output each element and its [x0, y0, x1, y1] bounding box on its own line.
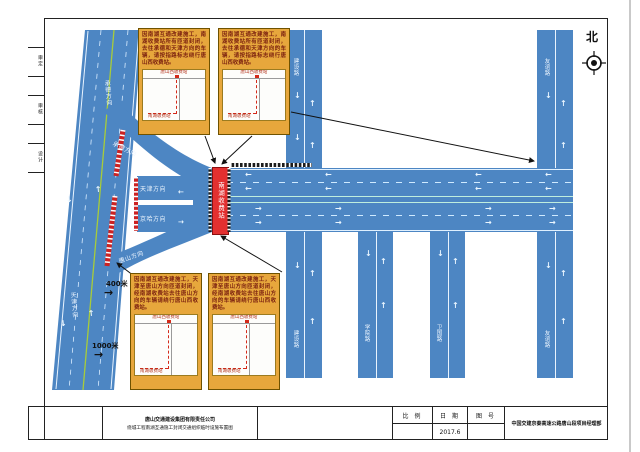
- detour-mini-map: 唐山西收费站 南湖收费站: [142, 69, 206, 121]
- arrow-up-icon: ↑: [95, 186, 102, 195]
- map-detour-route: [176, 80, 177, 114]
- arrow-right-icon: →: [549, 219, 556, 227]
- arrow-up-icon: ↑: [88, 310, 95, 319]
- lane-dash-line: [227, 215, 573, 216]
- street-3-name: 卫国路: [435, 324, 441, 342]
- arrow-up-icon: ↑: [560, 270, 567, 278]
- toll-station-name: 南湖收费站: [216, 182, 226, 220]
- margin-label-sheji: 设计: [28, 146, 44, 168]
- detour-mini-map: 唐山西收费站 南湖收费站: [222, 69, 286, 121]
- north-label: 北: [586, 28, 598, 45]
- date-cell: 日 期 2017.6: [433, 407, 468, 440]
- company-name: 唐山交通建设集团有限责任公司: [145, 416, 215, 423]
- notice-text: 因南湖互通改建施工，天津至唐山方向匝道封闭，经南湖收费站去往唐山方向的车辆请绕行…: [134, 277, 198, 312]
- margin-cell: 审定: [28, 47, 44, 77]
- arrow-left-icon: ←: [245, 171, 252, 179]
- map-detour-route: [168, 325, 169, 369]
- arrow-down-icon: ↓: [294, 262, 301, 270]
- ramp-c-direction: 京哈方向: [140, 214, 166, 223]
- arrow-up-icon: ↑: [309, 318, 316, 326]
- street-2-name: 学院路: [363, 324, 369, 342]
- arrow-up-icon: ↑: [560, 318, 567, 326]
- arrow-up-icon: ↑: [380, 258, 387, 266]
- ramp-b-direction: 天津方向: [140, 184, 166, 193]
- map-near-station-label: 南湖收费站: [218, 370, 241, 375]
- notice-top-left: 因南湖互通改建施工，南湖收费站所有匝道封闭，去往承德和天津方向的车辆，请按指路标…: [138, 28, 210, 135]
- map-street-line: [179, 78, 180, 120]
- mainline-lower-direction: 天津方向: [69, 292, 77, 318]
- title-block: 唐山交通建设集团有限责任公司 绕城工程南湖互通施工封闭交通组织临时设施布置图 比…: [28, 406, 608, 440]
- arrow-right-icon: →: [255, 219, 262, 227]
- arrow-up-icon: ↑: [309, 270, 316, 278]
- arrow-right-icon: →: [335, 219, 342, 227]
- org-cell: 中国交建京秦高速公路唐山段项目经理部: [505, 407, 608, 440]
- map-far-station-label: 唐山西收费站: [230, 316, 257, 321]
- street-1-name-top: 建设路: [292, 58, 298, 76]
- org-name: 中国交建京秦高速公路唐山段项目经理部: [511, 420, 601, 427]
- compass-icon: [579, 48, 609, 78]
- titleblock-company-cell: 唐山交通建设集团有限责任公司 绕城工程南湖互通施工封闭交通组织临时设施布置图: [103, 407, 258, 440]
- titleblock-empty-cell: [28, 407, 45, 440]
- drawing-page: 建设路 ↓ ↓ ↑ ↑ ↓ ↑ ↑ 建设路 ↓ ↑ ↑ 学院路 ↓ ↑ ↑ 卫国…: [0, 0, 640, 452]
- street-1-name-bottom: 建设路: [292, 330, 298, 348]
- arrow-up-icon: ↑: [309, 142, 316, 150]
- arrow-up-icon: ↑: [309, 100, 316, 108]
- arrow-right-icon: →: [178, 218, 184, 226]
- map-street-line: [135, 323, 197, 324]
- scale-label: 比 例: [393, 407, 432, 424]
- notice-text: 因南湖互通改建施工，天津至唐山方向匝道封闭，经南湖收费站去往唐山方向的车辆请绕行…: [212, 277, 276, 312]
- arrow-right-icon: →: [335, 205, 342, 213]
- notice-bottom-left: 因南湖互通改建施工，天津至唐山方向匝道封闭，经南湖收费站去往唐山方向的车辆请绕行…: [130, 273, 202, 390]
- mainline-upper-direction: 承德方向: [103, 80, 111, 106]
- toll-station-marker: 南湖收费站: [212, 167, 229, 235]
- margin-cell: 审核: [28, 95, 44, 125]
- margin-label-shenhe: 审核: [28, 98, 44, 120]
- notice-top-right: 因南湖互通改建施工，南湖收费站所有匝道封闭，去往承德和天津方向的车辆，请按指路标…: [218, 28, 290, 135]
- date-value: 2017.6: [433, 424, 467, 440]
- arrow-left-icon: ←: [178, 188, 184, 196]
- detour-mini-map: 唐山西收费站 南湖收费站: [134, 314, 198, 376]
- margin-strip: 审定 审核 设计: [28, 18, 45, 406]
- road-edge-line: [227, 230, 573, 231]
- arrow-right-icon: →: [549, 205, 556, 213]
- map-street-line: [213, 323, 275, 324]
- detour-mini-map: 唐山西收费站 南湖收费站: [212, 314, 276, 376]
- map-near-station-label: 南湖收费站: [148, 115, 171, 120]
- median-line: [227, 202, 573, 203]
- titleblock-empty-cell: [258, 407, 393, 440]
- arrow-right-icon: →: [485, 219, 492, 227]
- scale-value: [393, 424, 432, 440]
- distance-arrow-icon: →: [104, 289, 113, 297]
- notice-bottom-right: 因南湖互通改建施工，天津至唐山方向匝道封闭，经南湖收费站去往唐山方向的车辆请绕行…: [208, 273, 280, 390]
- map-detour-route: [246, 325, 247, 369]
- drawing-title: 绕城工程南湖互通施工封闭交通组织临时设施布置图: [127, 425, 233, 431]
- main-horizontal-road: ← ← ← ← ← ← ← ← → → → → → → → →: [227, 168, 573, 232]
- street-3-centerline: [448, 232, 449, 378]
- map-street-line: [143, 78, 205, 79]
- street-4-name-bottom: 友谊路: [543, 330, 549, 348]
- arrow-left-icon: ←: [475, 171, 482, 179]
- margin-label-shending: 审定: [28, 50, 44, 72]
- arrow-left-icon: ←: [325, 185, 332, 193]
- road-edge-line: [227, 169, 573, 170]
- street-road-2: ↓ ↑ ↑ 学院路: [358, 232, 393, 378]
- arrow-down-icon: ↓: [294, 134, 301, 142]
- arrow-left-icon: ←: [545, 171, 552, 179]
- arrow-left-icon: ←: [245, 185, 252, 193]
- map-street-line: [249, 323, 250, 375]
- median-line: [227, 196, 573, 197]
- notice-text: 因南湖互通改建施工，南湖收费站所有匝道封闭，去往承德和天津方向的车辆，请按指路标…: [142, 32, 206, 67]
- map-near-station-label: 南湖收费站: [228, 115, 251, 120]
- arrow-left-icon: ←: [475, 185, 482, 193]
- map-near-station-label: 南湖收费站: [140, 370, 163, 375]
- drawing-no-cell: 图 号: [468, 407, 505, 440]
- date-label: 日 期: [433, 407, 467, 424]
- arrow-left-icon: ←: [325, 171, 332, 179]
- arrow-up-icon: ↑: [452, 258, 459, 266]
- arrow-right-icon: →: [255, 205, 262, 213]
- map-street-line: [223, 78, 285, 79]
- arrow-right-icon: →: [485, 205, 492, 213]
- drawing-no-label: 图 号: [468, 407, 504, 424]
- drawing-no-value: [468, 424, 504, 440]
- arrow-down-icon: ↓: [437, 250, 444, 258]
- arrow-down-icon: ↓: [60, 320, 67, 329]
- notice-text: 因南湖互通改建施工，南湖收费站所有匝道封闭，去往承德和天津方向的车辆，请按指路标…: [222, 32, 286, 67]
- arrow-left-icon: ←: [545, 185, 552, 193]
- scale-cell: 比 例: [393, 407, 433, 440]
- arrow-up-icon: ↑: [452, 302, 459, 310]
- street-4-name-top: 友谊路: [543, 58, 549, 76]
- map-detour-route: [256, 80, 257, 114]
- street-2-centerline: [376, 232, 377, 378]
- titleblock-empty-cell: [45, 407, 103, 440]
- street-road-3: ↓ ↑ ↑ 卫国路: [430, 232, 465, 378]
- lane-dash-line: [227, 182, 573, 183]
- arrow-down-icon: ↓: [545, 92, 552, 100]
- arrow-down-icon: ↓: [545, 262, 552, 270]
- arrow-down-icon: ↓: [365, 250, 372, 258]
- distance-arrow-icon: →: [94, 351, 103, 359]
- arrow-up-icon: ↑: [380, 302, 387, 310]
- arrow-up-icon: ↑: [560, 142, 567, 150]
- arrow-up-icon: ↑: [560, 100, 567, 108]
- map-far-station-label: 唐山西收费站: [160, 71, 187, 76]
- map-far-station-label: 唐山西收费站: [240, 71, 267, 76]
- arrow-down-icon: ↓: [294, 92, 301, 100]
- margin-cell: 设计: [28, 143, 44, 173]
- map-street-line: [171, 323, 172, 375]
- map-street-line: [259, 78, 260, 120]
- arrow-down-icon: ↓: [66, 196, 73, 205]
- map-far-station-label: 唐山西收费站: [152, 316, 179, 321]
